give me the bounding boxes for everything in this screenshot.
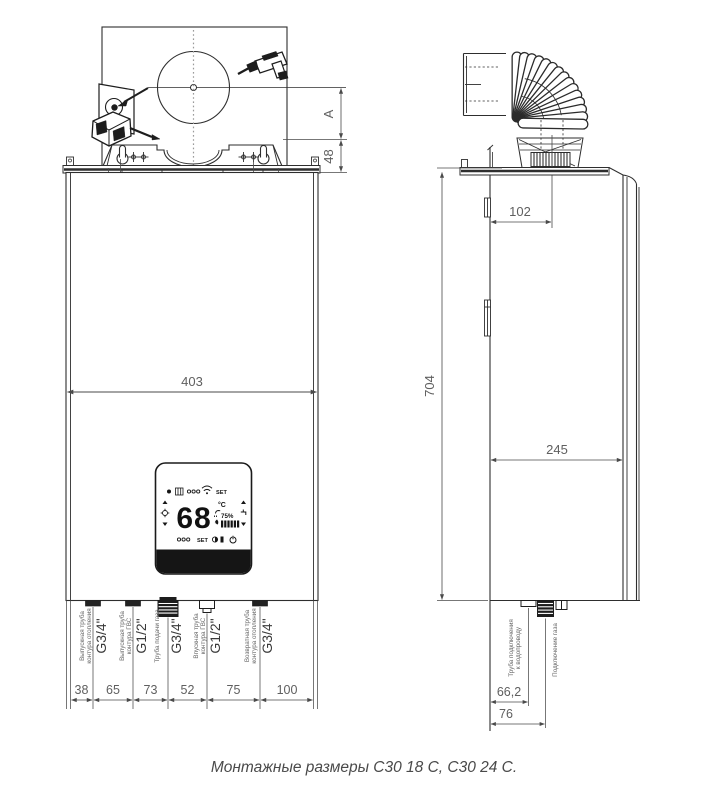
side-view: 102 704 245 <box>422 54 640 732</box>
lcd-set-top: SET <box>216 490 227 496</box>
lcd-unit: °C <box>218 501 226 509</box>
side-pipe-stubs <box>521 601 567 617</box>
wall-line <box>488 145 494 731</box>
pipe-stub-dhw-out <box>126 601 141 607</box>
lcd-percent: 75% <box>221 513 234 520</box>
installation-diagram-page: A 48 <box>0 0 720 793</box>
pipe4-desc-line2: контура ГВС <box>200 617 207 654</box>
status-dot-icon <box>167 490 171 494</box>
lcd-set-bottom: SET <box>197 538 208 544</box>
control-display: SET 68 °C 75% <box>156 463 252 574</box>
gas-stub <box>538 601 554 617</box>
dim-76-label: 76 <box>499 707 513 721</box>
dim-75: 75 <box>227 683 241 697</box>
flue-corrugations <box>517 57 583 124</box>
dim-48-label: 48 <box>321 149 336 163</box>
front-view: A 48 <box>63 27 347 709</box>
small-stub <box>556 601 567 610</box>
dim-100: 100 <box>277 683 298 697</box>
boiler-side-body <box>490 175 640 601</box>
pipe5-desc-line1: Возвратная труба <box>243 609 251 662</box>
installation-diagram: A 48 <box>0 0 720 793</box>
water-label-line2: к водопроводу <box>515 626 522 669</box>
pipe3-size: G3/4" <box>168 618 184 653</box>
pipe-stub-heating-return <box>253 601 268 607</box>
dim-65: 65 <box>106 683 120 697</box>
dim-66-2-label: 66,2 <box>497 685 521 699</box>
pipe-stub-gas <box>158 598 178 617</box>
water-label-line1: Труба подключения <box>507 619 515 677</box>
dim-38: 38 <box>75 683 89 697</box>
pipe2-size: G1/2" <box>133 618 149 653</box>
pipe1-desc-line2: контура отопления <box>86 608 93 663</box>
dim-73: 73 <box>144 683 158 697</box>
dim-245-label: 245 <box>546 442 568 457</box>
pipe1-desc-line1: Выпускная труба <box>78 611 86 661</box>
pipe-stub-heating-out <box>86 601 101 607</box>
dim-704-label: 704 <box>422 375 437 397</box>
lcd-temperature: 68 <box>176 502 211 535</box>
pipe5-desc-line2: контура отопления <box>251 608 258 663</box>
pipe-stub-dhw-in <box>200 601 215 613</box>
dim-102-label: 102 <box>509 204 531 219</box>
flue-elbow <box>464 54 584 229</box>
water-stub <box>521 601 536 607</box>
dim-52: 52 <box>181 683 195 697</box>
dim-403-label: 403 <box>181 374 203 389</box>
pipe1-size: G3/4" <box>93 618 109 653</box>
pipe3-desc: Труба подачи газа <box>153 609 161 663</box>
dim-704 <box>437 168 502 601</box>
caption: Монтажные размеры С30 18 С, С30 24 С. <box>211 759 517 776</box>
display-bottom-bar <box>156 550 250 574</box>
pipe2-desc-line2: контура ГВС <box>126 617 133 654</box>
pipe4-size: G1/2" <box>207 618 223 653</box>
flue-collar <box>464 54 507 116</box>
pipe4-desc-line1: Впускная труба <box>192 613 200 659</box>
dim-a-label: A <box>321 109 336 118</box>
pipe5-size: G3/4" <box>259 618 275 653</box>
gas-label: Подключение газа <box>552 623 559 677</box>
pipe2-desc-line1: Выпускная труба <box>118 611 126 661</box>
